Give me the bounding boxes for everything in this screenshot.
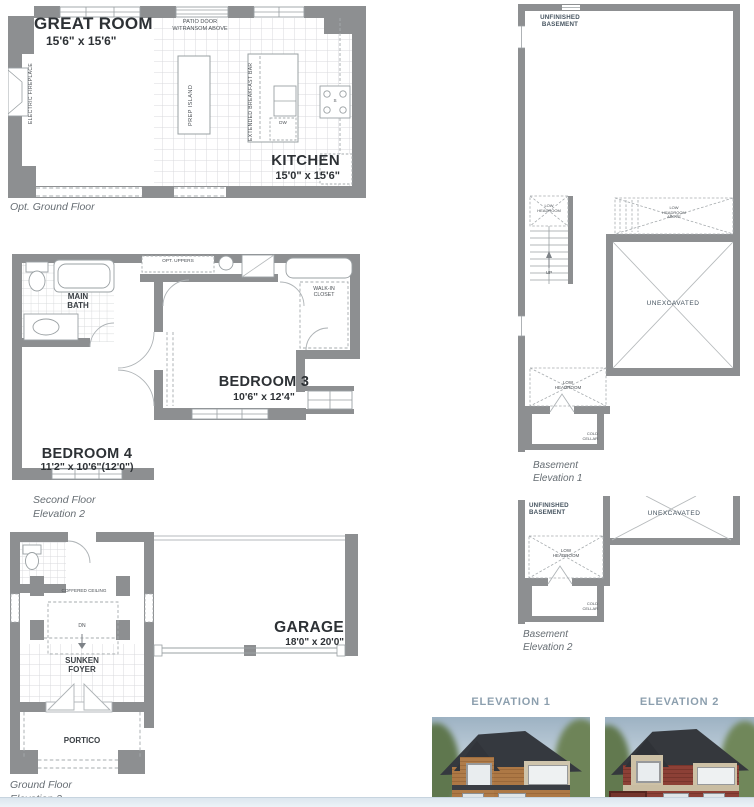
elevation-1-title: ELEVATION 1 [432, 696, 590, 708]
dishwasher-label: DW [271, 120, 295, 125]
kitchen-dims: 15'0" x 15'6" [246, 170, 340, 183]
bedroom3-label: BEDROOM 3 [204, 374, 324, 391]
basement-elevation1-caption: Basement Elevation 1 [533, 459, 582, 485]
breakfast-bar-label: EXTENDED BREAKFAST BAR [249, 57, 255, 141]
cold-cellar-label: COLD CELLAR [562, 432, 598, 441]
garage-dims: 18'0" x 20'0" [236, 637, 344, 649]
unfinished-basement2-label: UNFINISHED BASEMENT [529, 502, 591, 517]
stove-label: S [320, 98, 350, 103]
basement-elevation2-plan: UNFINISHED BASEMENT UNEXCAVATED LOW HEAD… [518, 496, 742, 626]
porch-roof [452, 785, 570, 790]
portico-label: PORTICO [48, 736, 116, 745]
low-headroom-label: LOW HEADROOM [530, 380, 606, 391]
upper-window-left [466, 763, 492, 787]
elevation-1-photo [432, 717, 590, 806]
cold-cellar2-label: COLD CELLAR [564, 602, 598, 611]
opt-uppers-label: OPT. UPPERS [146, 259, 210, 265]
up-label: UP [538, 270, 560, 275]
great-room-dims: 15'6" x 15'6" [46, 34, 116, 48]
bedroom4-dims: 11'2" x 10'6"(12'0") [16, 461, 158, 473]
patio-door-label: PATIO DOOR W/TRANSOM ABOVE [148, 19, 252, 32]
opt-ground-floor-plan: GREAT ROOM 15'6" x 15'6" PATIO DOOR W/TR… [8, 6, 376, 204]
kitchen-label: KITCHEN [246, 152, 340, 170]
electric-fireplace-label: ELECTRIC FIREPLACE [29, 60, 35, 124]
unexcavated-label: UNEXCAVATED [622, 300, 724, 308]
coffered-ceiling-label: COFFERED CEILING [48, 588, 120, 593]
basement-elevation1-plan: UNFINISHED BASEMENT LOW HEADROOM LOW HEA… [518, 4, 742, 456]
unexcavated2-label: UNEXCAVATED [610, 510, 738, 518]
elevation-2-photo [605, 717, 754, 806]
dn-label: DN [72, 624, 92, 630]
ground-floor-plan: COFFERED CEILING DN SUNKEN FOYER PORTICO… [8, 528, 360, 780]
prep-island-label: PREP ISLAND [188, 66, 195, 126]
sunken-foyer-label: SUNKEN FOYER [48, 656, 116, 675]
second-floor-caption: Second Floor Elevation 2 [33, 494, 95, 521]
main-bath-label: MAIN BATH [48, 292, 108, 311]
garage-label: GARAGE [236, 619, 344, 637]
low-headroom-stairs-label: LOW HEADROOM [530, 204, 568, 213]
bay-window [697, 767, 735, 785]
great-room-label: GREAT ROOM [34, 14, 153, 34]
low-headroom-above-label: LOW HEADROOM ABOVE [644, 206, 704, 220]
low-headroom2-label: LOW HEADROOM [529, 548, 603, 559]
unfinished-basement-label: UNFINISHED BASEMENT [528, 14, 592, 29]
bay-window [528, 765, 568, 785]
walk-in-closet-label: WALK-IN CLOSET [302, 286, 346, 298]
bedroom3-dims: 10'6" x 12'4" [204, 391, 324, 403]
elevation-2-title: ELEVATION 2 [605, 696, 754, 708]
basement-elevation2-caption: Basement Elevation 2 [523, 628, 572, 654]
opt-ground-floor-caption: Opt. Ground Floor [10, 201, 95, 215]
second-floor-plan: MAIN BATH OPT. UPPERS WALK-IN CLOSET BED… [8, 250, 376, 494]
upper-window-left [636, 761, 661, 783]
